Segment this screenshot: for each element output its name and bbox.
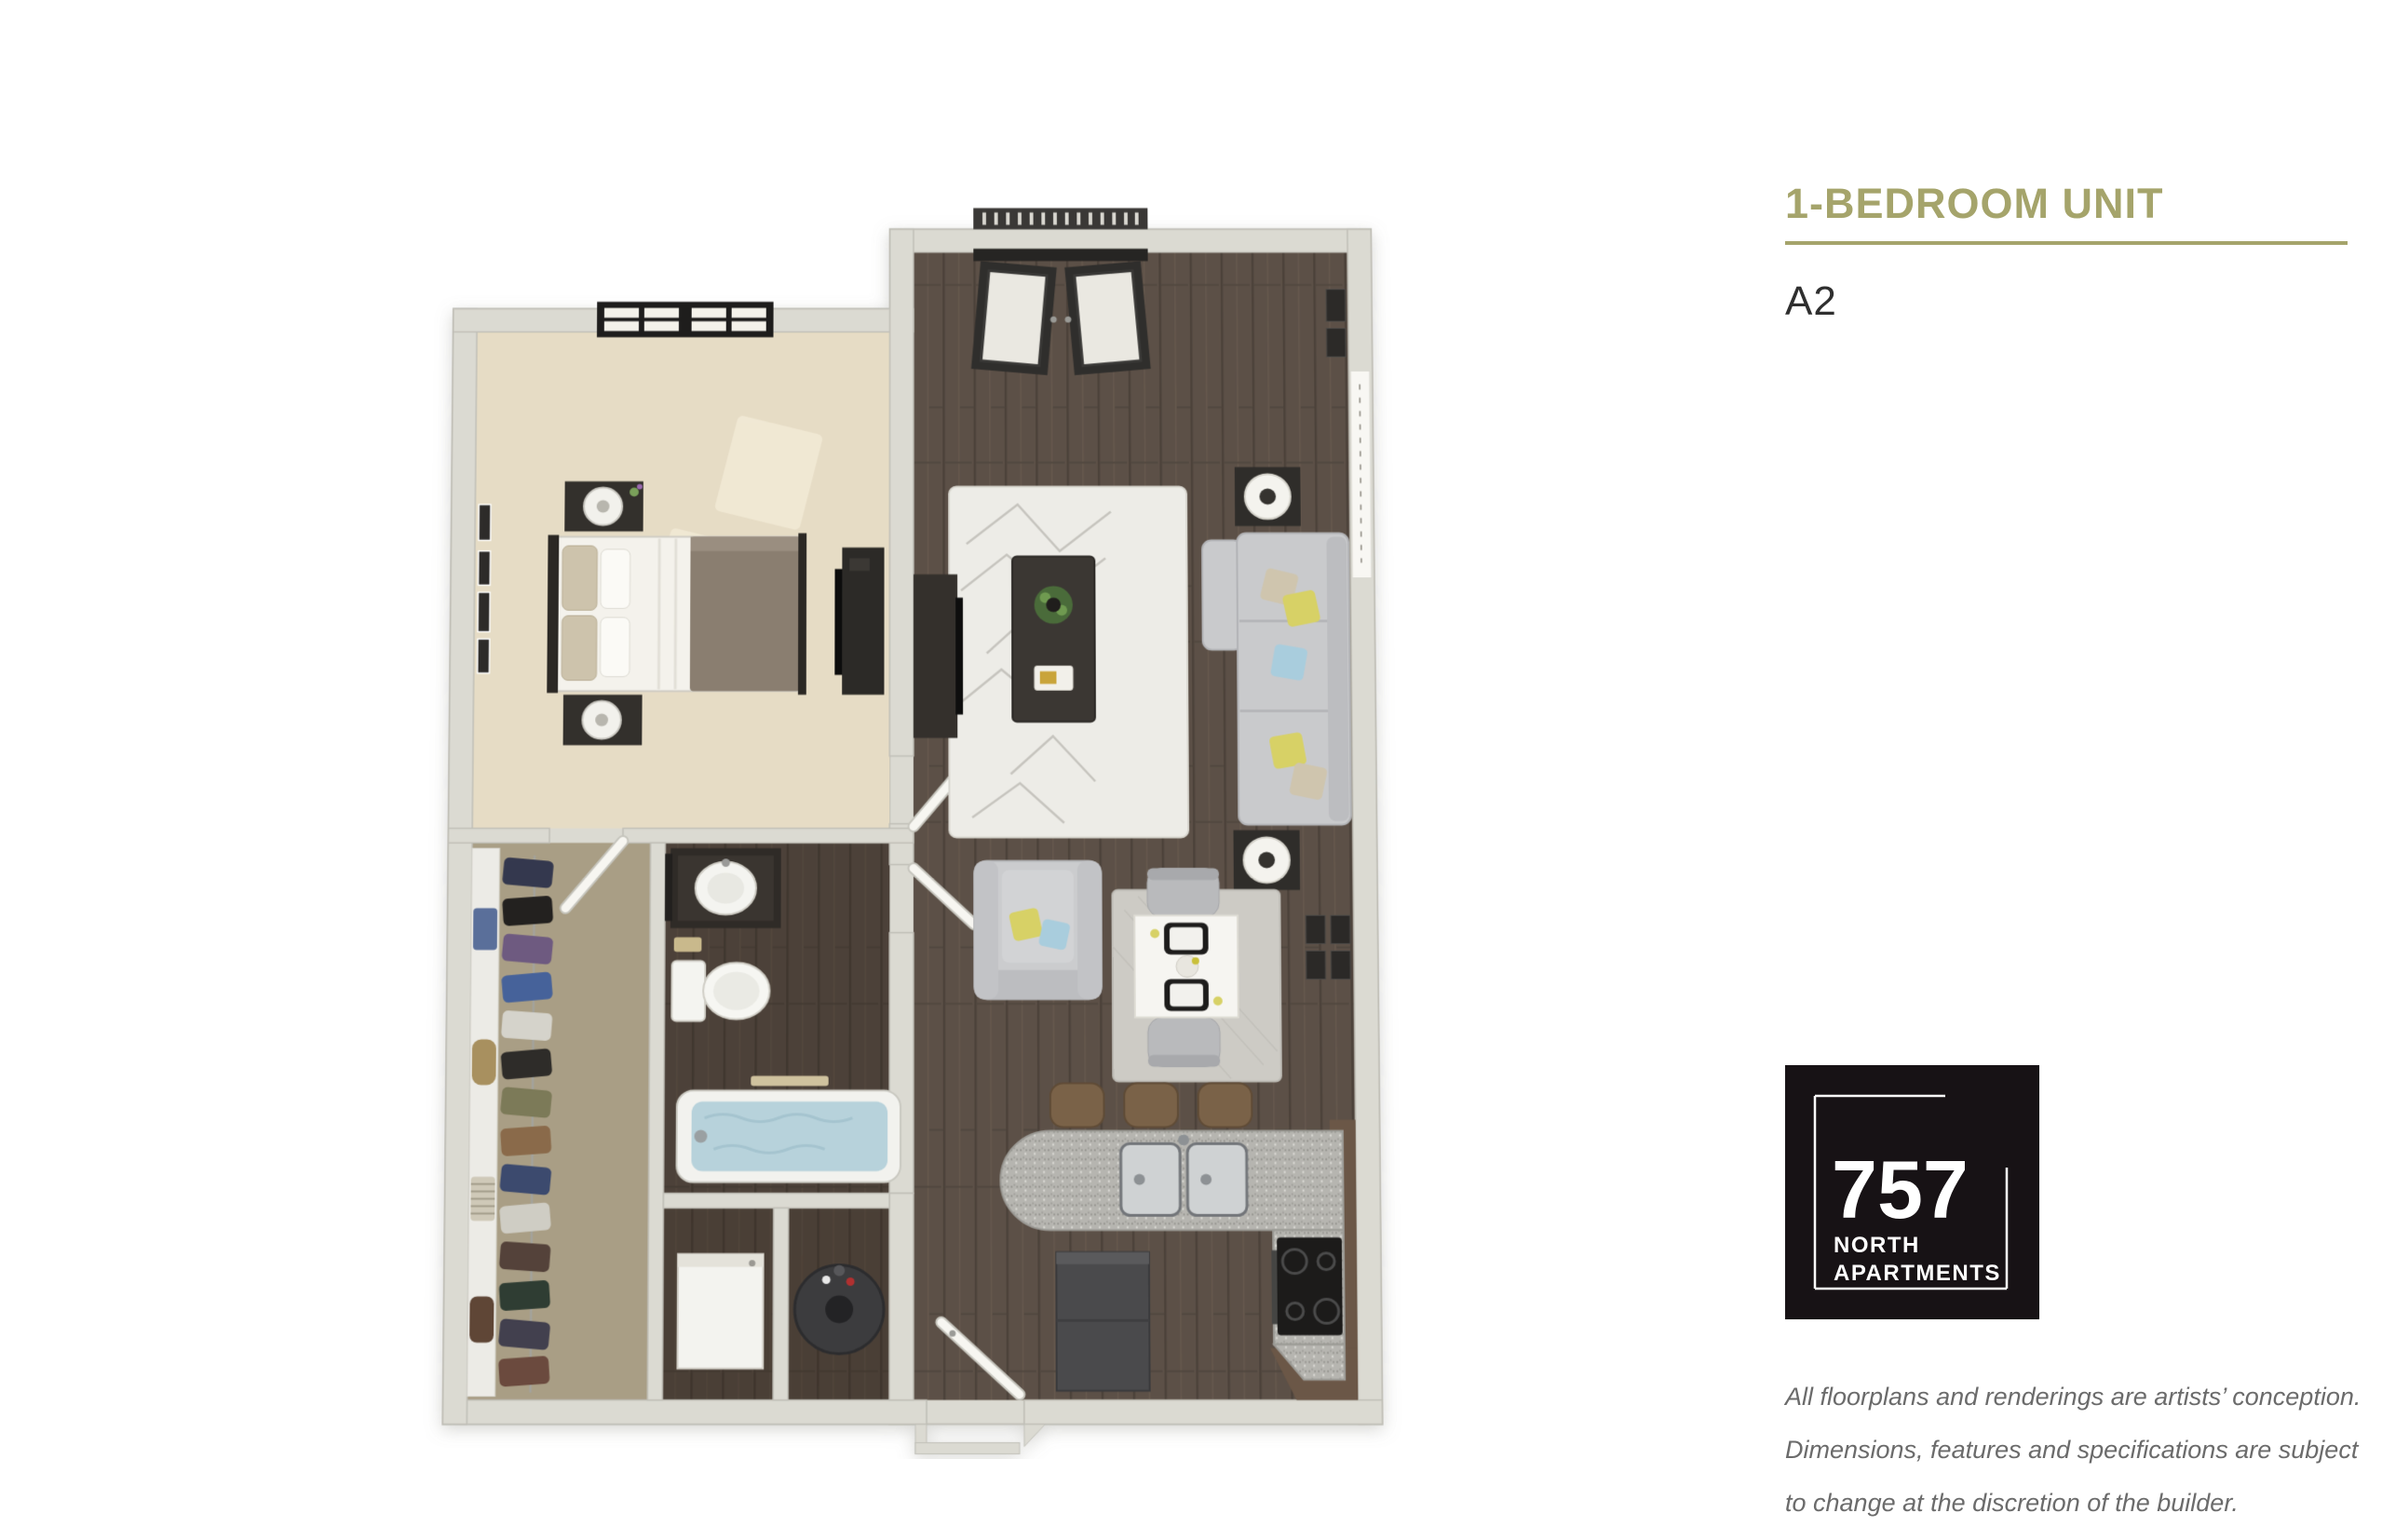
nightstand	[563, 695, 643, 745]
side-table-lamp	[1235, 467, 1301, 526]
logo-line2: APARTMENTS	[1834, 1261, 2001, 1286]
tv-console	[834, 547, 884, 695]
coffee-table	[1012, 557, 1095, 723]
dining-chair	[1148, 1018, 1221, 1067]
disclaimer-line: All floorplans and renderings are artist…	[1785, 1371, 2362, 1424]
title-rule	[1785, 241, 2348, 245]
logo-number: 757	[1832, 1143, 1969, 1236]
bathroom-vanity	[665, 848, 781, 928]
bed	[547, 534, 806, 695]
towel	[674, 938, 702, 952]
floor-plan	[405, 196, 1420, 1459]
brand-logo: 757 NORTH APARTMENTS	[1785, 1065, 2039, 1319]
bathtub	[676, 1076, 900, 1182]
tv-console	[914, 574, 963, 738]
unit-label: A2	[1785, 278, 2348, 325]
logo-line1: NORTH	[1834, 1233, 1920, 1258]
brochure-page: 1-BEDROOM UNIT A2 757 NORTH APARTMENTS A…	[0, 0, 2382, 1540]
washer	[677, 1254, 763, 1369]
page-title: 1-BEDROOM UNIT	[1785, 180, 2348, 228]
stove	[1271, 1237, 1343, 1335]
disclaimer-line: to change at the discretion of the build…	[1785, 1477, 2362, 1530]
refrigerator	[1056, 1252, 1149, 1391]
dining-table	[1134, 915, 1238, 1018]
towel-rack	[751, 1076, 828, 1087]
water-heater	[794, 1265, 884, 1354]
nightstand	[564, 481, 643, 532]
disclaimer-line: Dimensions, features and specifications …	[1785, 1424, 2362, 1477]
disclaimer: All floorplans and renderings are artist…	[1785, 1371, 2362, 1530]
bar-stool	[1050, 1083, 1252, 1127]
armchair	[974, 861, 1102, 999]
dining-chair	[1147, 868, 1219, 917]
mirror-icon	[665, 854, 672, 921]
balcony-railing	[973, 208, 1147, 229]
tv-icon	[955, 598, 963, 715]
bedroom-window-icon	[597, 302, 774, 337]
side-table-lamp	[1233, 831, 1300, 890]
info-panel: 1-BEDROOM UNIT A2	[1785, 180, 2348, 325]
